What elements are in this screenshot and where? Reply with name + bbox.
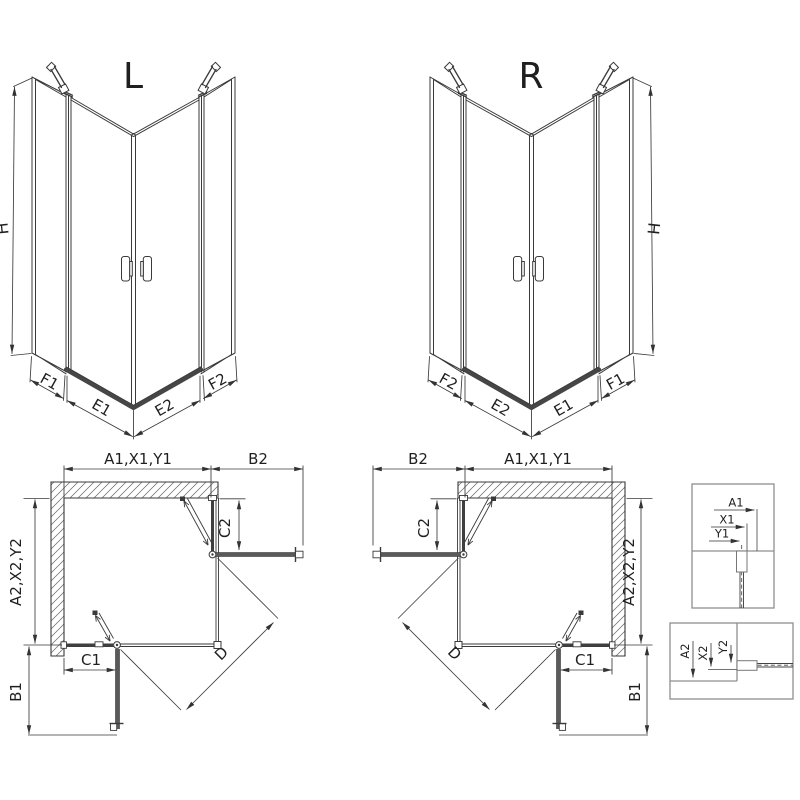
height-dim-label-left: H: [0, 222, 13, 236]
plan-view-right: B2 A1,X1,Y1 C2 A2,X2,Y2 C1 B1 D: [373, 450, 653, 735]
perspective-view-right: R H F2 E2 E1 F1: [428, 56, 664, 439]
y2-detail-label: Y2: [716, 640, 730, 655]
y1-detail-label: Y1: [714, 527, 729, 541]
enclosure-plan-right: [373, 466, 653, 736]
a1-detail-label: A1: [728, 496, 743, 510]
detail-view-wall-profile-top: A1 X1 Y1: [692, 484, 774, 608]
plan-view-left: A1,X1,Y1 B2 C2 A2,X2,Y2 C1 B1 D: [7, 450, 303, 735]
wall-profile-section-top: [737, 551, 748, 572]
c1-dim-label-right: C1: [575, 651, 595, 669]
a2x2y2-dim-label-left: A2,X2,Y2: [7, 538, 25, 606]
variant-label-right: R: [518, 56, 543, 97]
enclosure-plan-left: [24, 466, 304, 736]
e2-dim-label-left: E2: [152, 395, 177, 420]
a1x1y1-dim-label-right: A1,X1,Y1: [504, 450, 572, 468]
a2-detail-label: A2: [678, 643, 692, 658]
height-dim-label-right: H: [643, 222, 663, 236]
x1-detail-label: X1: [719, 513, 734, 527]
f1-dim-label-left: F1: [37, 369, 62, 394]
technical-drawing-sheet: L H F1 E1 E2 F2 R H F2 E2 E1 F1 A1,X1,Y1…: [0, 0, 800, 800]
perspective-view-left: L H F1 E1 E2 F2: [0, 56, 237, 439]
b2-dim-label-right: B2: [408, 450, 428, 468]
c1-dim-label-left: C1: [81, 651, 101, 669]
drawing-svg: L H F1 E1 E2 F2 R H F2 E2 E1 F1 A1,X1,Y1…: [0, 0, 800, 800]
f2-dim-label-left: F2: [205, 369, 230, 394]
a1x1y1-dim-label-left: A1,X1,Y1: [104, 450, 172, 468]
variant-label-left: L: [123, 56, 143, 97]
detail-view-wall-profile-bottom: A2 X2 Y2: [670, 623, 793, 699]
e2-dim-label-right: E2: [488, 395, 513, 420]
c2-dim-label-right: C2: [415, 518, 433, 538]
detail-frame-bottom: [670, 623, 793, 699]
b2-dim-label-left: B2: [248, 450, 268, 468]
b1-dim-label-left: B1: [7, 682, 25, 702]
x2-detail-label: X2: [696, 645, 710, 660]
e1-dim-label-right: E1: [551, 395, 576, 420]
a2x2y2-dim-label-right: A2,X2,Y2: [620, 538, 638, 606]
wall-profile-section-bottom: [737, 661, 757, 671]
c2-dim-label-left: C2: [216, 518, 234, 538]
f2-dim-label-right: F2: [436, 369, 461, 394]
e1-dim-label-left: E1: [89, 395, 114, 420]
b1-dim-label-right: B1: [626, 682, 644, 702]
f1-dim-label-right: F1: [603, 369, 628, 394]
